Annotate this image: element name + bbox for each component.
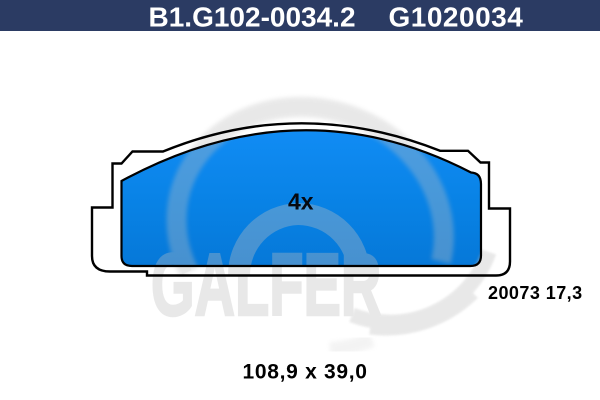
- svg-text:G1020034: G1020034: [389, 1, 524, 32]
- svg-text:20073 17,3: 20073 17,3: [488, 283, 583, 303]
- svg-text:GALFER: GALFER: [151, 235, 381, 334]
- svg-text:4x: 4x: [288, 189, 314, 215]
- svg-text:108,9 x 39,0: 108,9 x 39,0: [243, 361, 368, 384]
- svg-text:B1.G102-0034.2: B1.G102-0034.2: [149, 1, 356, 32]
